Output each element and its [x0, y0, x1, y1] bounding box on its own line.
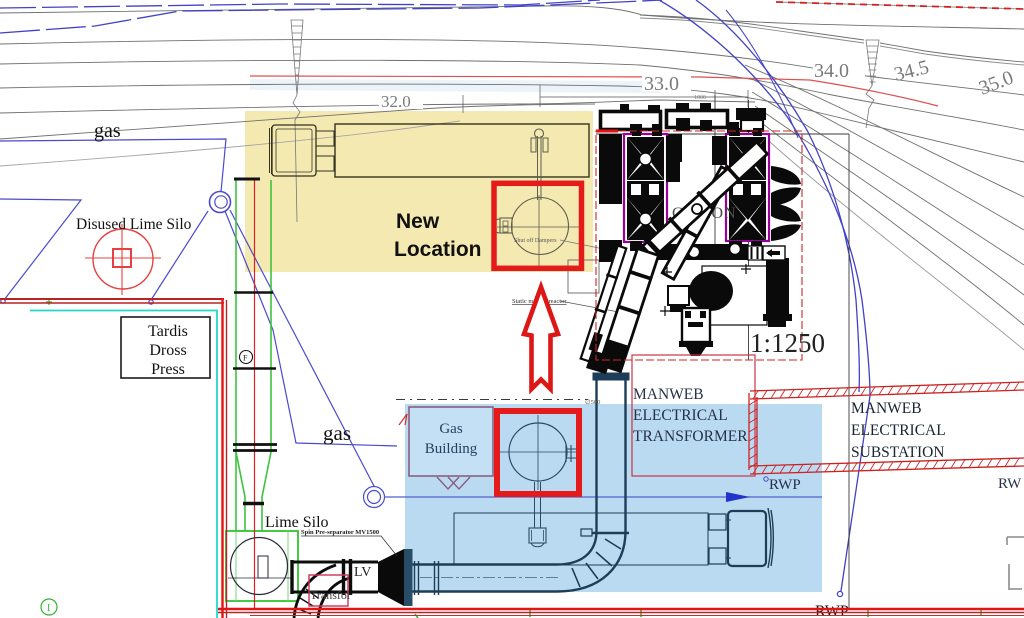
svg-text:Tardis: Tardis [148, 323, 188, 340]
svg-text:F: F [243, 354, 248, 363]
svg-text:TRANSFORMER: TRANSFORMER [633, 428, 748, 445]
svg-text:MANWEB: MANWEB [851, 400, 922, 417]
svg-text:MANWEB: MANWEB [633, 386, 704, 403]
svg-text:33.0: 33.0 [644, 73, 679, 95]
svg-text:32.0: 32.0 [381, 92, 411, 111]
svg-text:ELECTRICAL: ELECTRICAL [633, 407, 728, 424]
svg-text:Press: Press [151, 361, 185, 378]
svg-text:1000: 1000 [694, 95, 706, 101]
svg-text:gas: gas [94, 120, 121, 142]
svg-text:Spin Pre-separator MV1500: Spin Pre-separator MV1500 [301, 529, 379, 536]
svg-text:New: New [396, 210, 440, 233]
svg-text:I: I [47, 603, 50, 614]
svg-text:Building: Building [425, 441, 478, 457]
svg-text:ELECTRICAL: ELECTRICAL [851, 422, 946, 439]
svg-text:∅500: ∅500 [585, 399, 600, 406]
svg-text:LV: LV [354, 565, 371, 580]
svg-text:RW: RW [998, 476, 1022, 492]
svg-text:RWP: RWP [769, 477, 801, 493]
svg-text:Gas: Gas [439, 421, 462, 437]
svg-text:1:1250: 1:1250 [750, 328, 825, 358]
svg-text:34.0: 34.0 [814, 60, 849, 82]
svg-text:Dross: Dross [149, 342, 186, 359]
svg-text:Location: Location [394, 238, 482, 261]
svg-text:Transfor: Transfor [310, 588, 351, 602]
svg-text:Shut off Dampers: Shut off Dampers [514, 237, 557, 244]
svg-text:Disused Lime Silo: Disused Lime Silo [76, 216, 192, 233]
svg-text:SUBSTATION: SUBSTATION [851, 444, 945, 461]
svg-text:gas: gas [323, 421, 351, 445]
